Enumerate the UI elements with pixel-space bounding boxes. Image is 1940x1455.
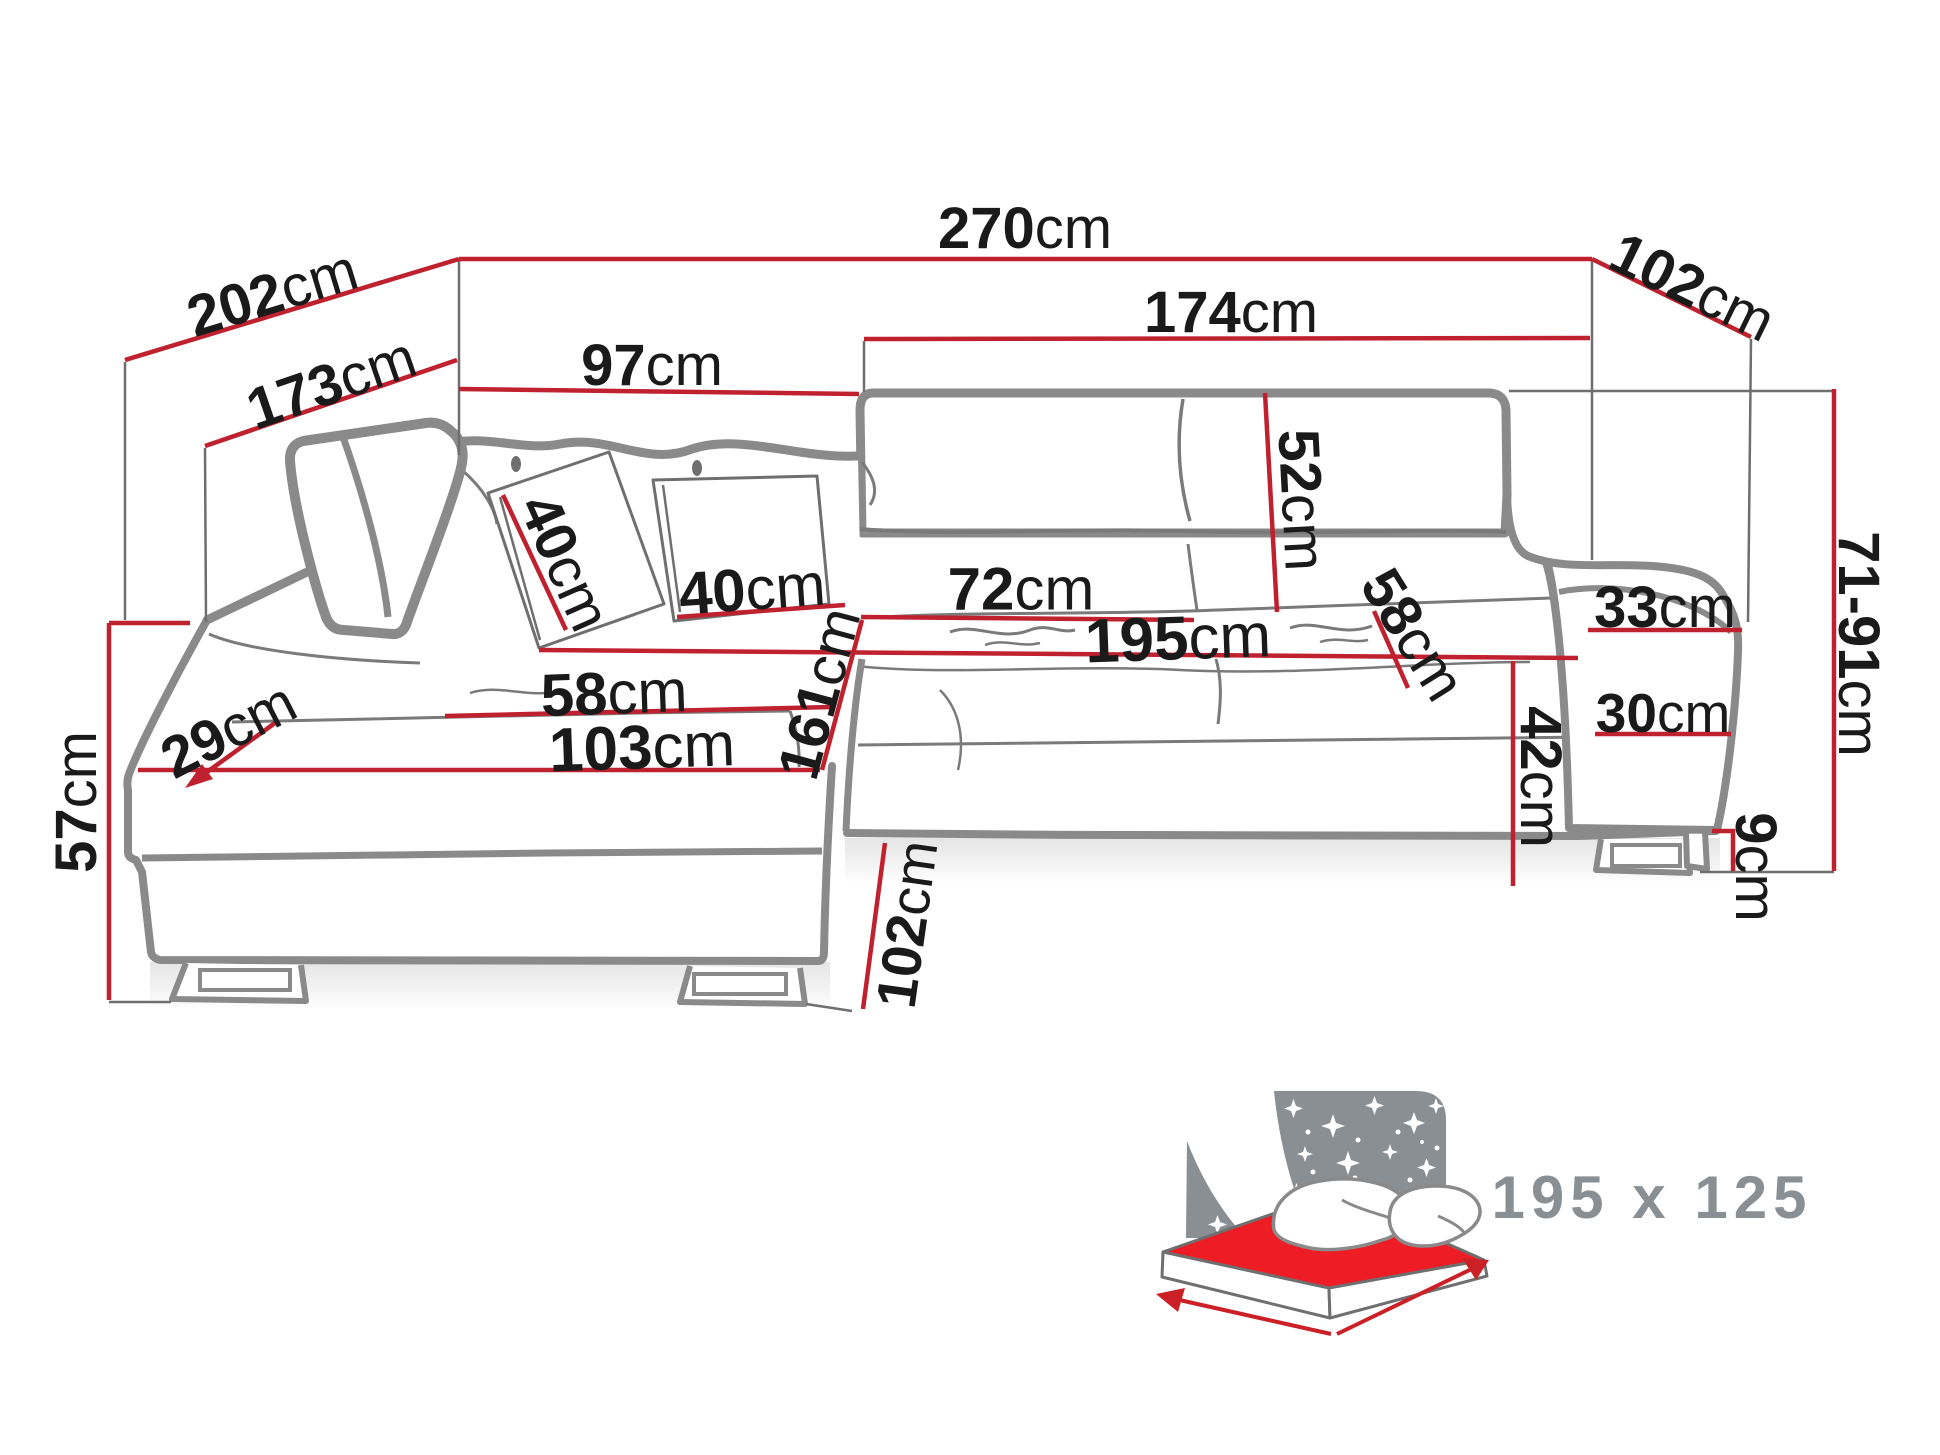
svg-text:9cm: 9cm <box>1723 812 1788 922</box>
svg-text:72cm: 72cm <box>948 556 1095 623</box>
svg-text:202cm: 202cm <box>180 237 366 350</box>
svg-text:58cm: 58cm <box>1348 557 1478 712</box>
svg-text:30cm: 30cm <box>1596 682 1731 744</box>
svg-text:174cm: 174cm <box>1144 280 1318 345</box>
svg-text:33cm: 33cm <box>1594 575 1736 640</box>
svg-text:195cm: 195cm <box>1084 601 1272 676</box>
svg-text:195 x 125: 195 x 125 <box>1492 1164 1813 1231</box>
svg-text:57cm: 57cm <box>44 731 109 873</box>
svg-text:42cm: 42cm <box>1508 706 1573 848</box>
svg-text:52cm: 52cm <box>1265 428 1337 573</box>
svg-text:40cm: 40cm <box>677 551 828 628</box>
svg-text:270cm: 270cm <box>938 196 1112 261</box>
svg-text:97cm: 97cm <box>581 333 723 398</box>
svg-text:102cm: 102cm <box>1600 220 1785 355</box>
svg-text:71-91cm: 71-91cm <box>1826 531 1891 757</box>
svg-text:103cm: 103cm <box>548 710 736 785</box>
